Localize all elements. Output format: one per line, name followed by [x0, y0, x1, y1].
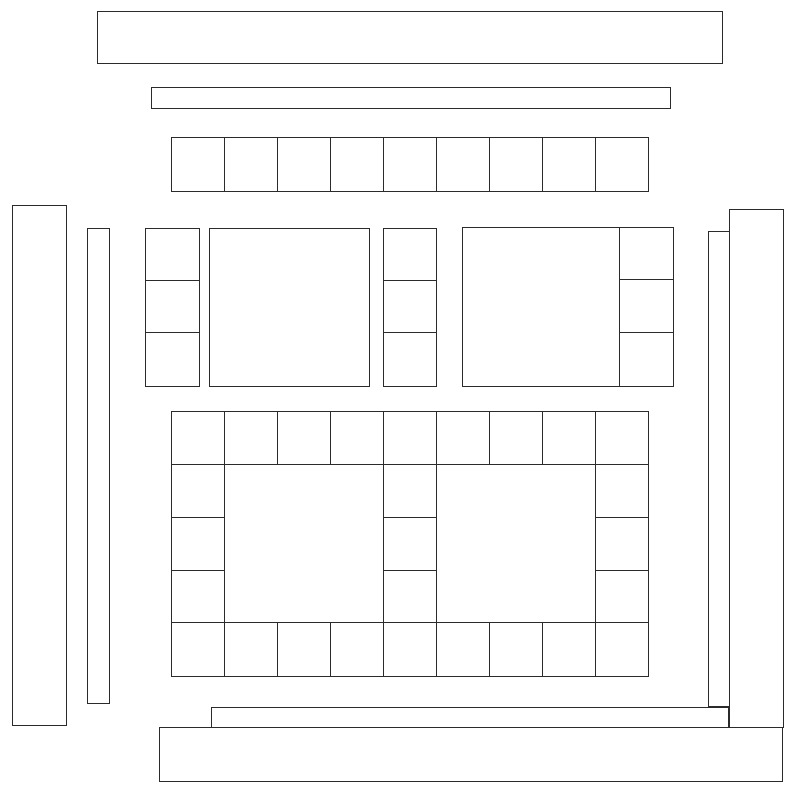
- lower-grid-top-row-cell: [171, 411, 225, 465]
- lower-grid-top-row-cell: [277, 411, 331, 465]
- lower-grid-left-column-cell: [171, 517, 225, 571]
- top-cornerstone-row-cell: [383, 137, 437, 192]
- middle-center-sash-column-cell: [383, 280, 437, 333]
- lower-grid-top-row-cell: [330, 411, 384, 465]
- top-cornerstone-row-cell: [436, 137, 490, 192]
- bottom-outer-border-strip: [159, 727, 783, 782]
- top-cornerstone-row-cell: [224, 137, 278, 192]
- middle-left-sash-column-cell: [145, 228, 200, 281]
- lower-grid-right-column-cell: [595, 570, 649, 623]
- middle-right-large-block: [462, 227, 620, 387]
- lower-grid-top-row-cell: [542, 411, 596, 465]
- middle-right-sash-column-cell: [619, 227, 674, 280]
- top-inner-border-strip: [151, 87, 671, 109]
- middle-right-sash-column-cell: [619, 279, 674, 333]
- top-cornerstone-row-cell: [277, 137, 331, 192]
- lower-grid-top-row-cell: [383, 411, 437, 465]
- middle-left-sash-column-cell: [145, 332, 200, 387]
- lower-grid-right-column-cell: [595, 517, 649, 571]
- diagram-canvas: [0, 0, 801, 793]
- top-cornerstone-row-cell: [542, 137, 596, 192]
- middle-right-sash-column-cell: [619, 332, 674, 387]
- middle-left-sash-column-cell: [145, 280, 200, 333]
- left-outer-border-strip: [12, 205, 67, 726]
- lower-grid-bottom-row-cell: [383, 622, 437, 677]
- left-inner-border-strip: [87, 228, 110, 704]
- top-cornerstone-row-cell: [595, 137, 649, 192]
- top-cornerstone-row-cell: [489, 137, 543, 192]
- lower-grid-bottom-row-cell: [277, 622, 331, 677]
- lower-grid-center-column-cell: [383, 570, 437, 623]
- lower-grid-center-column-cell: [383, 464, 437, 518]
- lower-grid-top-row-cell: [595, 411, 649, 465]
- lower-grid-top-row-cell: [224, 411, 278, 465]
- lower-grid-bottom-row-cell: [489, 622, 543, 677]
- lower-grid-left-column-cell: [171, 464, 225, 518]
- middle-center-sash-column-cell: [383, 228, 437, 281]
- lower-grid-center-column-cell: [383, 517, 437, 571]
- lower-grid-bottom-row-cell: [595, 622, 649, 677]
- lower-grid-bottom-row-cell: [224, 622, 278, 677]
- lower-grid-left-column-cell: [171, 570, 225, 623]
- middle-left-large-block: [209, 228, 370, 387]
- middle-center-sash-column-cell: [383, 332, 437, 387]
- lower-grid-bottom-row-cell: [171, 622, 225, 677]
- lower-grid-top-row-cell: [489, 411, 543, 465]
- bottom-inner-border-strip: [211, 707, 729, 728]
- top-cornerstone-row-cell: [171, 137, 225, 192]
- lower-grid-right-column-cell: [595, 464, 649, 518]
- lower-grid-bottom-row-cell: [542, 622, 596, 677]
- right-inner-border-strip: [708, 231, 730, 707]
- top-outer-border-strip: [97, 11, 723, 64]
- lower-grid-bottom-row-cell: [330, 622, 384, 677]
- top-cornerstone-row-cell: [330, 137, 384, 192]
- lower-grid-top-row-cell: [436, 411, 490, 465]
- right-outer-border-strip: [729, 209, 784, 728]
- lower-grid-bottom-row-cell: [436, 622, 490, 677]
